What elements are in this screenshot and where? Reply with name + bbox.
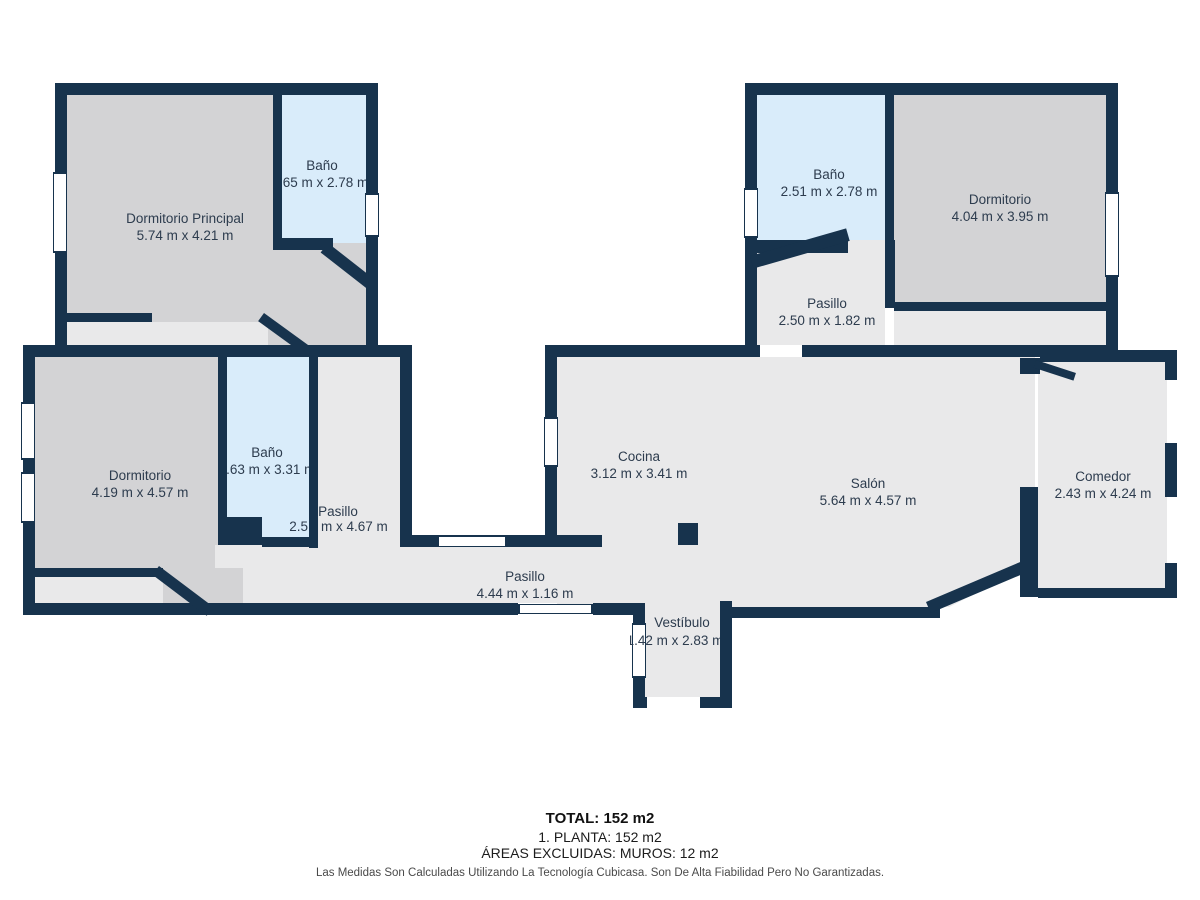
wall-segment [1165,350,1177,380]
room-label-vestibulo: Vestíbulo [654,614,710,631]
disclaimer-text: Las Medidas Son Calculadas Utilizando La… [0,867,1200,879]
closet-fill-top-right [894,311,1106,345]
room-name: Dormitorio [92,467,189,484]
room-name: Vestíbulo [654,614,710,631]
room-name: Comedor [1055,468,1152,485]
wall-segment [35,568,163,577]
room-dims: 2.51 m x 2.78 m [781,183,878,200]
window [53,172,67,253]
wall-segment [55,83,378,95]
room-label-dormitorio-top-right: Dormitorio 4.04 m x 3.95 m [952,191,1049,225]
room-name: Dormitorio [952,191,1049,208]
wall-segment [1165,443,1177,497]
wall-segment [309,357,318,548]
wall-segment [273,95,282,247]
wall-segment [545,345,760,357]
room-dims: 3.12 m x 3.41 m [591,465,688,482]
summary-total: TOTAL: 152 m2 [0,810,1200,827]
room-dims: 4.04 m x 3.95 m [952,208,1049,225]
wall-segment [262,537,309,547]
wall-segment [633,697,647,708]
room-fill-salon-cocina [557,357,1035,607]
wall-segment [700,697,732,708]
room-label-bano-left: Baño 1.63 m x 3.31 m [219,444,316,478]
wall-segment [23,603,518,615]
room-label-bano-top-left: Baño [306,157,338,174]
window [1105,192,1119,277]
wall-segment [885,95,894,240]
wall-segment [218,517,262,545]
wall-segment [894,302,1106,311]
room-dims: 5.74 m x 4.21 m [126,227,244,244]
room-label-salon: Salón 5.64 m x 4.57 m [820,475,917,509]
room-name: Dormitorio Principal [126,210,244,227]
wall-segment [1165,563,1177,598]
room-name: Baño [306,157,338,174]
room-dims: 1.63 m x 3.31 m [219,461,316,478]
wall-segment [1020,487,1038,597]
window [437,536,507,547]
window [744,188,758,238]
floor-plan: Baño 1.63 m x 3.31 m .65 m x 2.78 m [0,0,1200,900]
room-label-dormitorio-left: Dormitorio 4.19 m x 4.57 m [92,467,189,501]
room-fill-dormitorio-left [35,357,218,568]
window [21,402,35,460]
room-name: Salón [820,475,917,492]
room-dims: 5.64 m x 4.57 m [820,492,917,509]
summary-floor: 1. PLANTA: 152 m2 [0,829,1200,845]
room-dims-bano-top-left: .65 m x 2.78 m [279,174,368,191]
wall-segment [1038,588,1177,598]
room-dims-pasillo-left-a: 2.5 [289,518,308,535]
closet-fill-top-left [67,322,268,345]
wall-segment [55,313,152,322]
room-dims: 2.50 m x 1.82 m [779,312,876,329]
window [365,193,379,237]
room-name: Pasillo [779,295,876,312]
wall-segment [720,607,940,618]
wall-segment [593,603,645,615]
room-label-comedor: Comedor 2.43 m x 4.24 m [1055,468,1152,502]
room-dims: 4.44 m x 1.16 m [477,585,574,602]
wall-segment [745,83,1118,95]
room-dims-pasillo-left-b: m x 4.67 m [321,518,388,535]
room-dims: 4.19 m x 4.57 m [92,484,189,501]
room-label-cocina: Cocina 3.12 m x 3.41 m [591,448,688,482]
room-name: Baño [781,166,878,183]
closet-fill-left [35,577,163,603]
room-label-bano-top-right: Baño 2.51 m x 2.78 m [781,166,878,200]
room-name: Cocina [591,448,688,465]
room-dims: 2.43 m x 4.24 m [1055,485,1152,502]
room-label-pasillo-top-right: Pasillo 2.50 m x 1.82 m [779,295,876,329]
wall-segment [1040,350,1177,362]
room-label-dormitorio-principal: Dormitorio Principal 5.74 m x 4.21 m [126,210,244,244]
window [518,604,593,614]
room-label-pasillo-bottom: Pasillo 4.44 m x 1.16 m [477,568,574,602]
room-name: Pasillo [477,568,574,585]
structural-column [678,523,698,545]
room-name: Baño [219,444,316,461]
wall-segment [720,601,732,708]
room-dims-vestibulo: 1.42 m x 2.83 m [630,632,720,649]
window [544,417,558,467]
wall-segment [885,240,895,308]
wall-segment [23,345,412,357]
window [21,472,35,523]
wall-segment [400,345,412,547]
summary-excluded: ÁREAS EXCLUIDAS: MUROS: 12 m2 [0,845,1200,861]
